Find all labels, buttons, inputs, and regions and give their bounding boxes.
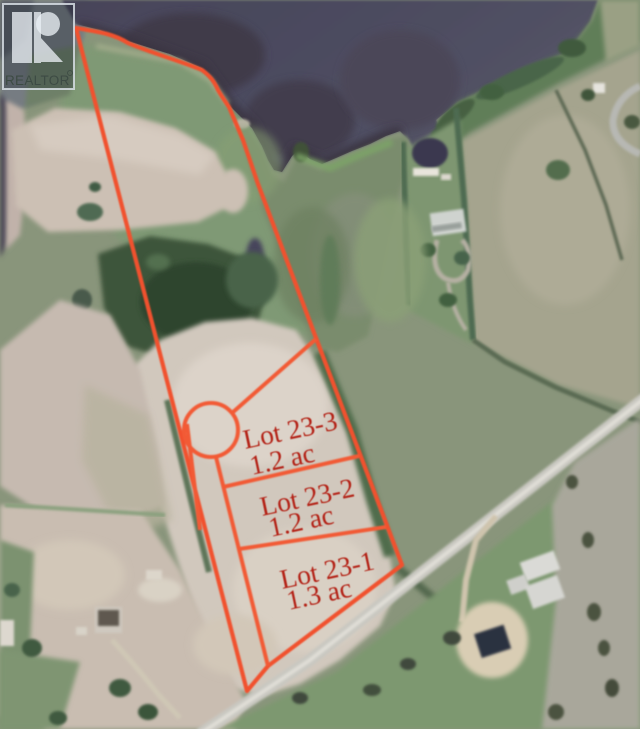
svg-text:REALTOR: REALTOR — [5, 73, 70, 88]
